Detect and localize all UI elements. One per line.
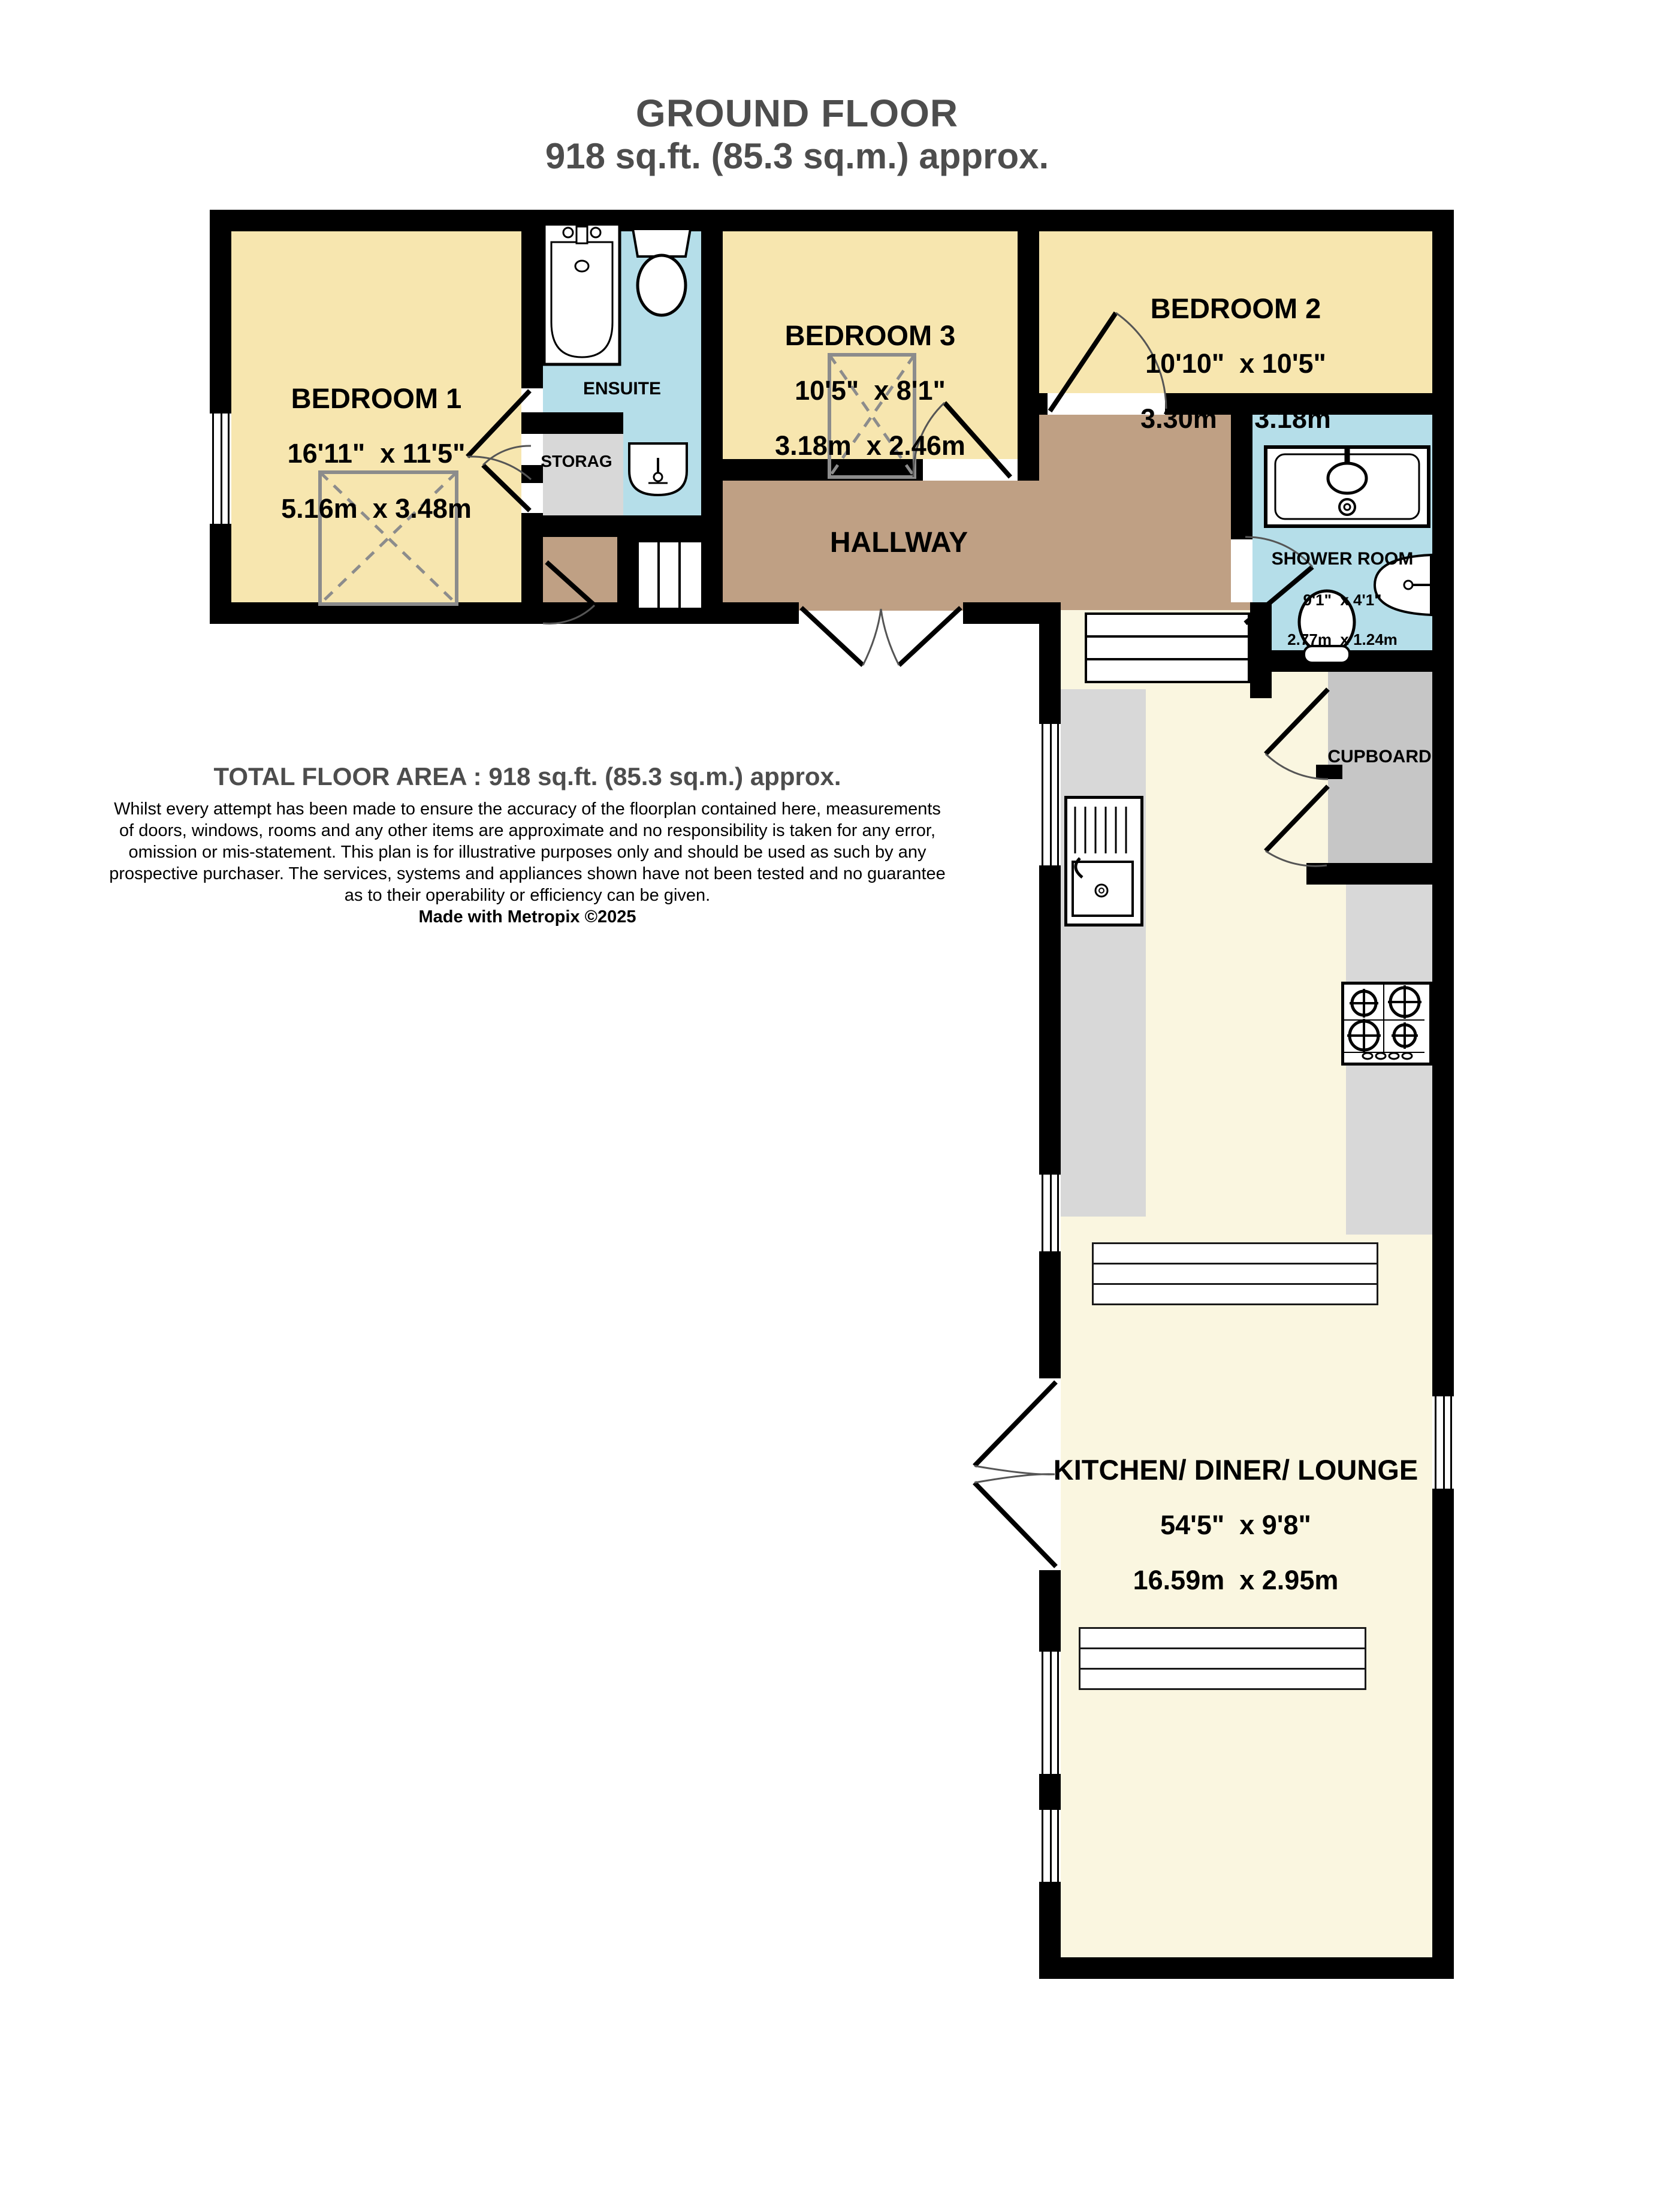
bedroom1-name: BEDROOM 1: [281, 381, 472, 415]
label-bedroom1: BEDROOM 1 16'11" x 11'5" 5.16m x 3.48m: [281, 360, 472, 536]
shower-tray: [1266, 447, 1429, 526]
bedroom2-imperial: 10'10" x 10'5": [1140, 347, 1331, 381]
shower-metric: 2.77m x 1.24m: [1272, 630, 1414, 648]
door-french-lounge: [974, 1382, 1056, 1567]
door-entrance-double: [801, 608, 961, 665]
label-bedroom2: BEDROOM 2 10'10" x 10'5" 3.30m x 3.18m: [1140, 270, 1331, 446]
door-storage: [483, 446, 531, 511]
bath-fixture: [544, 224, 620, 364]
bedroom2-name: BEDROOM 2: [1140, 291, 1331, 325]
bedroom1-imperial: 16'11" x 11'5": [281, 437, 472, 470]
metropix-credit: Made with Metropix ©2025: [418, 906, 636, 928]
floorplan-page: { "title": { "line1": "GROUND FLOOR", "l…: [0, 0, 1660, 2212]
shower-imperial: 9'1" x 4'1": [1272, 591, 1414, 609]
shower-name: SHOWER ROOM: [1272, 549, 1414, 569]
label-hallway: HALLWAY: [830, 526, 968, 559]
label-kitchen: KITCHEN/ DINER/ LOUNGE 54'5" x 9'8" 16.5…: [1054, 1431, 1418, 1608]
label-cupboard: CUPBOARD: [1327, 747, 1431, 767]
kitchen-imperial: 54'5" x 9'8": [1054, 1508, 1418, 1542]
gas-hob-burners: [1344, 985, 1424, 1059]
kitchen-sink: [1073, 807, 1133, 916]
shower-head: [1328, 463, 1366, 493]
basin-ensuite: [629, 443, 687, 495]
door-ensuite: [467, 391, 531, 479]
total-floor-area: TOTAL FLOOR AREA : 918 sq.ft. (85.3 sq.m…: [213, 762, 841, 791]
label-shower: SHOWER ROOM 9'1" x 4'1" 2.77m x 1.24m: [1272, 527, 1414, 659]
bedroom2-metric: 3.30m x 3.18m: [1140, 402, 1331, 436]
label-storage: STORAG: [541, 452, 612, 471]
kitchen-metric: 16.59m x 2.95m: [1054, 1564, 1418, 1597]
bedroom3-name: BEDROOM 3: [775, 318, 965, 352]
label-ensuite: ENSUITE: [583, 379, 661, 399]
disclaimer-text: Whilst every attempt has been made to en…: [108, 798, 947, 906]
kitchen-name: KITCHEN/ DINER/ LOUNGE: [1054, 1453, 1418, 1487]
bedroom3-metric: 3.18m x 2.46m: [775, 429, 965, 463]
bedroom1-metric: 5.16m x 3.48m: [281, 492, 472, 526]
toilet-ensuite: [633, 229, 690, 315]
label-bedroom3: BEDROOM 3 10'5" x 8'1" 3.18m x 2.46m: [775, 297, 965, 473]
door-cupboard-bifold: [1266, 689, 1328, 866]
bedroom3-imperial: 10'5" x 8'1": [775, 374, 965, 408]
door-bedroom1: [543, 562, 594, 624]
